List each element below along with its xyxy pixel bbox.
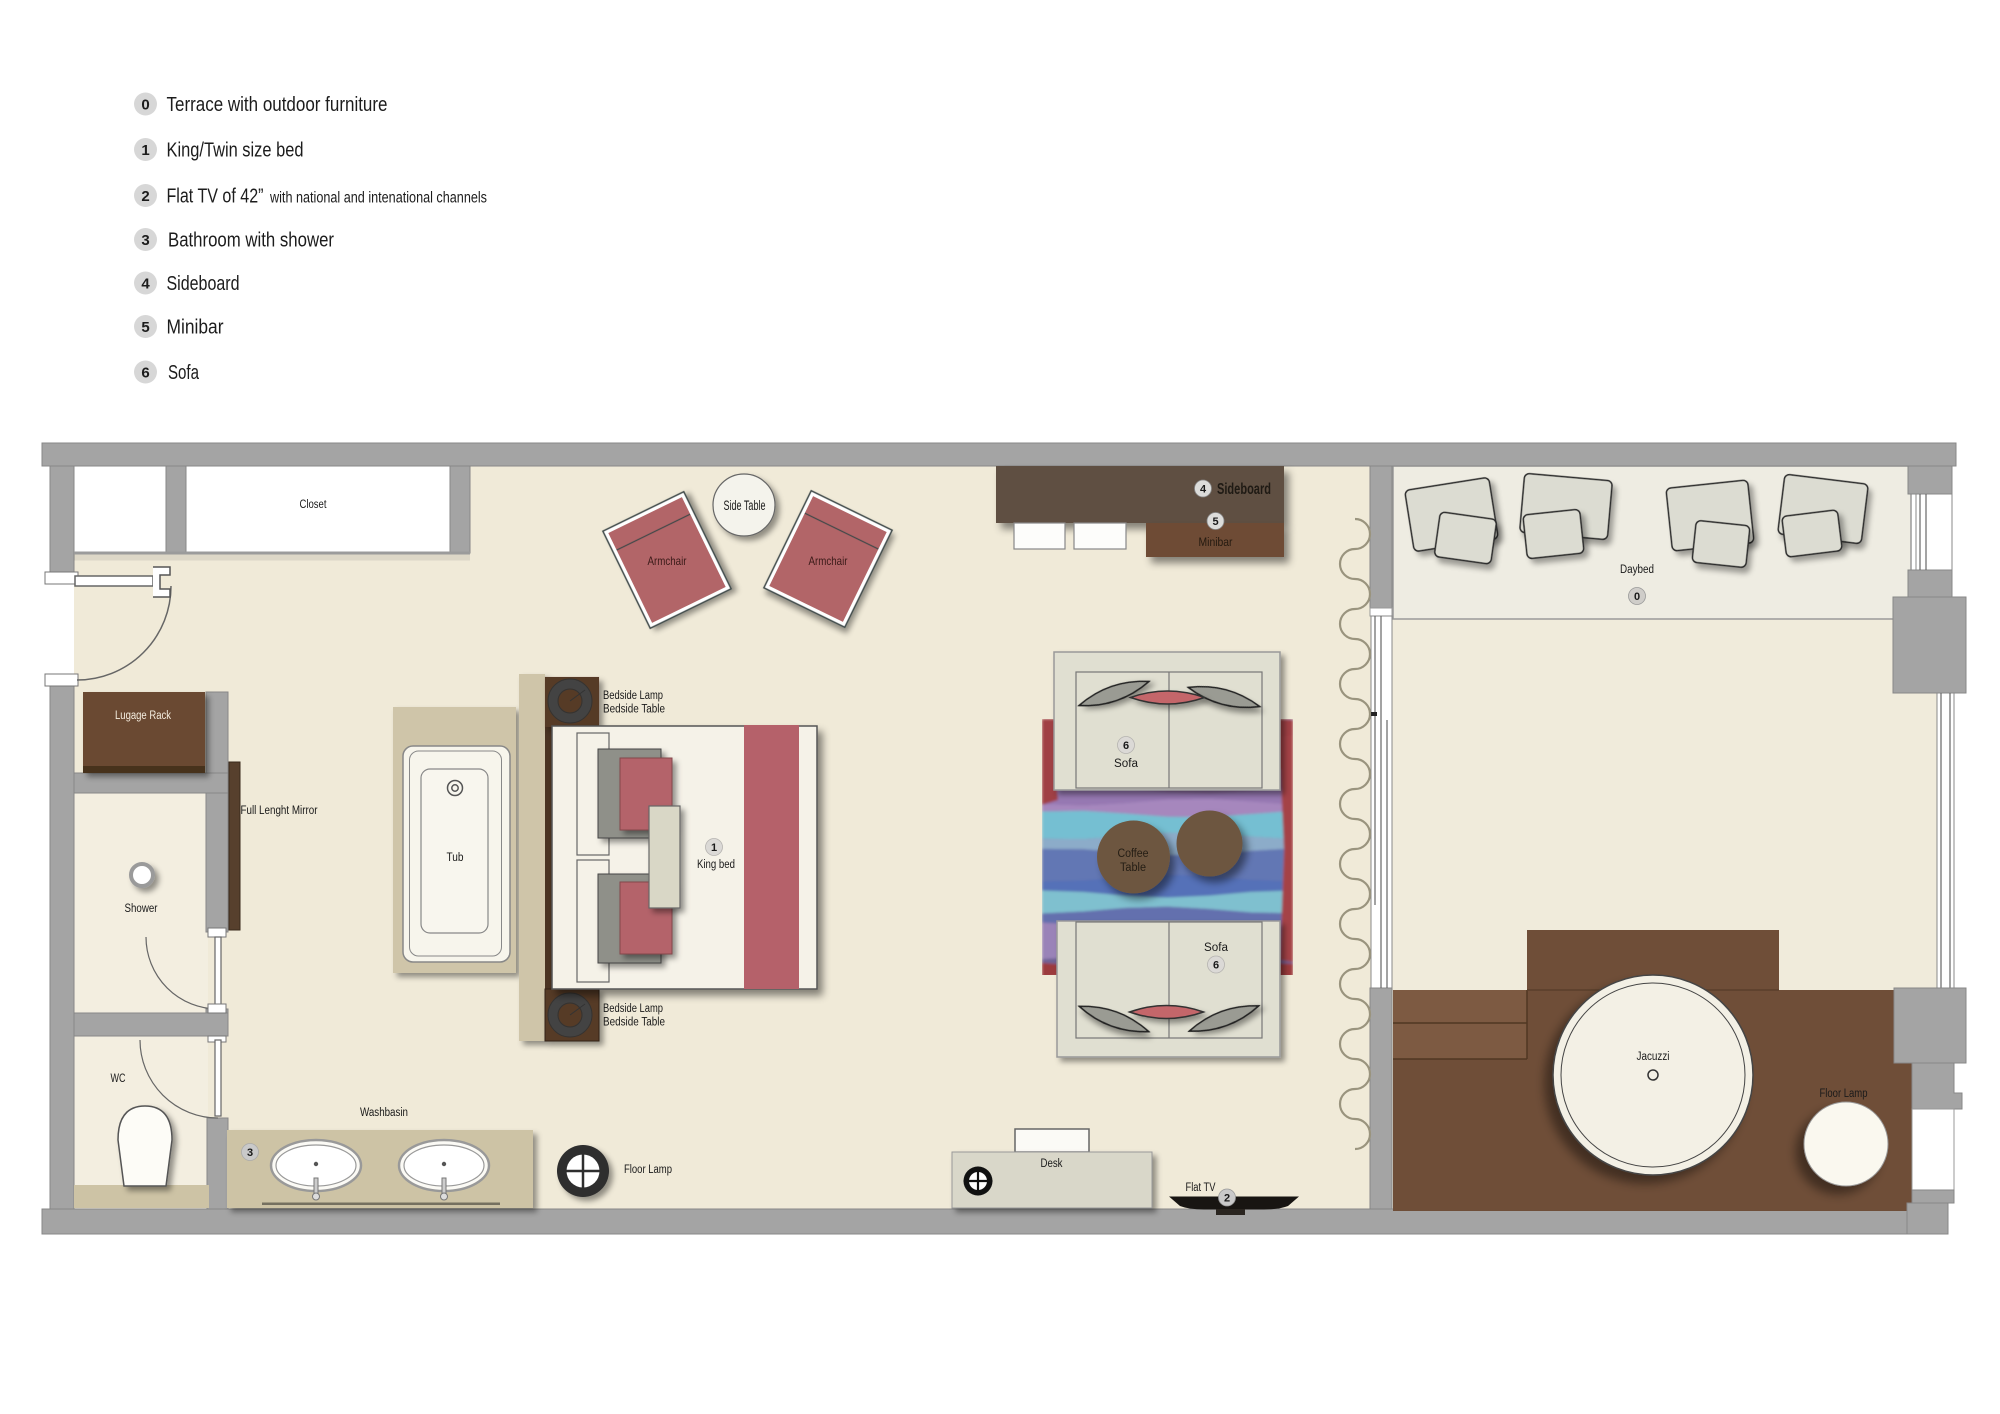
svg-text:Shower: Shower bbox=[125, 903, 158, 915]
svg-text:5: 5 bbox=[141, 319, 149, 336]
svg-text:0: 0 bbox=[141, 97, 149, 114]
svg-text:Closet: Closet bbox=[300, 499, 328, 511]
svg-text:Sofa: Sofa bbox=[1204, 942, 1229, 954]
svg-text:Armchair: Armchair bbox=[809, 554, 848, 568]
svg-text:1: 1 bbox=[711, 842, 717, 854]
svg-text:3: 3 bbox=[141, 232, 149, 249]
svg-text:Sideboard: Sideboard bbox=[167, 272, 240, 295]
svg-text:3: 3 bbox=[247, 1147, 253, 1159]
svg-text:4: 4 bbox=[141, 276, 150, 293]
svg-text:6: 6 bbox=[1123, 740, 1129, 752]
svg-text:Minibar: Minibar bbox=[1199, 535, 1233, 549]
svg-text:Full Lenght Mirror: Full Lenght Mirror bbox=[241, 805, 318, 817]
svg-text:Minibar: Minibar bbox=[167, 316, 224, 339]
svg-text:with national and intenational: with national and intenational channels bbox=[269, 190, 487, 207]
svg-text:Floor Lamp: Floor Lamp bbox=[1820, 1088, 1868, 1100]
svg-text:Flat TV of 42”: Flat TV of 42” bbox=[167, 185, 264, 208]
svg-text:Flat TV: Flat TV bbox=[1186, 1182, 1216, 1194]
svg-text:Bedside Table: Bedside Table bbox=[603, 704, 665, 716]
svg-text:Sideboard: Sideboard bbox=[1217, 481, 1271, 498]
svg-text:6: 6 bbox=[141, 365, 149, 382]
svg-text:Bathroom with shower: Bathroom with shower bbox=[168, 229, 334, 252]
svg-text:Floor Lamp: Floor Lamp bbox=[624, 1164, 672, 1176]
svg-text:King/Twin size bed: King/Twin size bed bbox=[167, 139, 304, 162]
svg-text:4: 4 bbox=[1200, 484, 1207, 496]
svg-text:Table: Table bbox=[1120, 862, 1146, 874]
svg-text:5: 5 bbox=[1212, 516, 1218, 528]
svg-text:Bedside Lamp: Bedside Lamp bbox=[603, 1003, 663, 1015]
svg-text:Desk: Desk bbox=[1041, 1158, 1063, 1170]
svg-text:1: 1 bbox=[141, 142, 149, 159]
svg-text:Tub: Tub bbox=[447, 852, 464, 864]
svg-text:Sofa: Sofa bbox=[168, 361, 199, 384]
svg-text:2: 2 bbox=[141, 188, 149, 205]
svg-text:Coffee: Coffee bbox=[1118, 848, 1149, 860]
svg-text:Bedside Table: Bedside Table bbox=[603, 1017, 665, 1029]
svg-text:Jacuzzi: Jacuzzi bbox=[1637, 1051, 1670, 1063]
svg-text:Washbasin: Washbasin bbox=[360, 1107, 408, 1119]
svg-text:2: 2 bbox=[1224, 1193, 1230, 1205]
svg-text:Side Table: Side Table bbox=[724, 498, 766, 513]
svg-text:Terrace with outdoor furniture: Terrace with outdoor furniture bbox=[167, 93, 388, 116]
svg-text:WC: WC bbox=[111, 1073, 126, 1085]
svg-text:6: 6 bbox=[1213, 960, 1219, 972]
svg-text:0: 0 bbox=[1634, 591, 1640, 603]
svg-text:Lugage Rack: Lugage Rack bbox=[115, 710, 171, 722]
svg-text:Sofa: Sofa bbox=[1114, 758, 1139, 770]
svg-text:Bedside Lamp: Bedside Lamp bbox=[603, 690, 663, 702]
svg-text:King bed: King bed bbox=[697, 859, 735, 871]
svg-text:Daybed: Daybed bbox=[1620, 564, 1654, 576]
svg-text:Armchair: Armchair bbox=[648, 554, 687, 568]
